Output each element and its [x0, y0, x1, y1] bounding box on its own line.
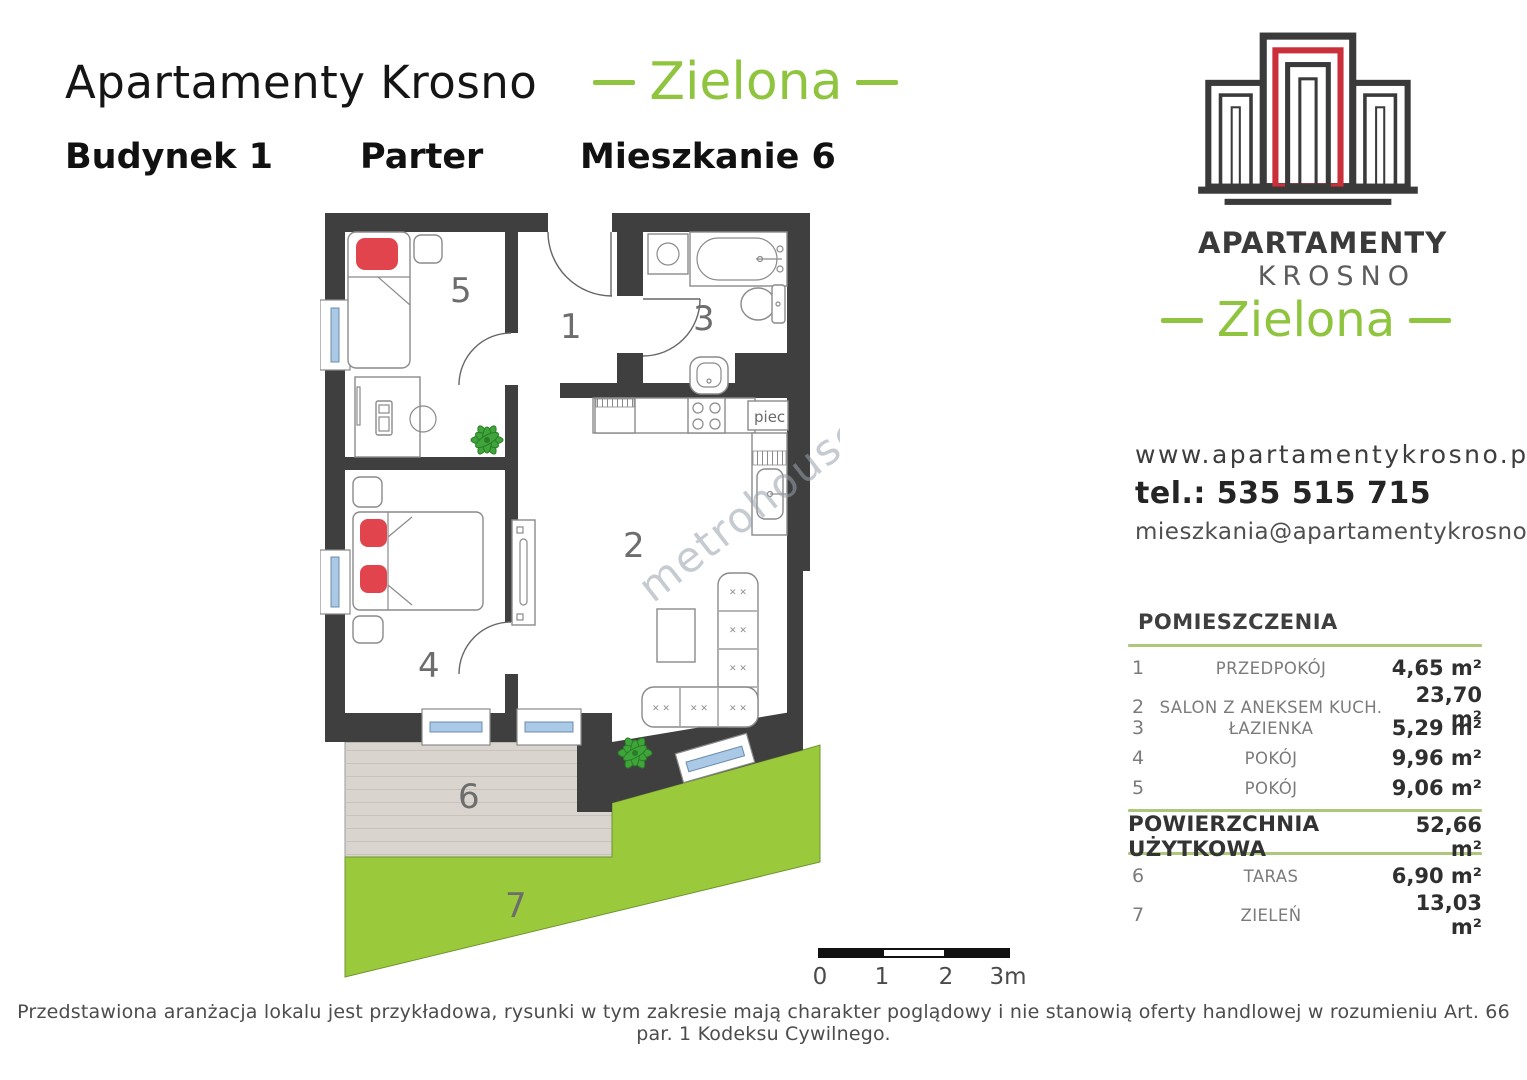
scale-bar: 0 1 2 3m — [818, 948, 1010, 990]
pillow — [360, 519, 387, 547]
room5-label: 5 — [450, 271, 472, 311]
room-area: 5,29 m² — [1386, 716, 1482, 740]
room-area: 6,90 m² — [1386, 864, 1482, 888]
page-title: Apartamenty Krosno — [65, 56, 537, 109]
website-link[interactable]: www.apartamentykrosno.pl — [1135, 440, 1527, 469]
room-area: 9,06 m² — [1386, 776, 1482, 800]
logo-project-name: Zielona — [1128, 292, 1484, 348]
floor-label: Parter — [360, 137, 580, 177]
legal-disclaimer: Przedstawiona aranżacja lokalu jest przy… — [0, 1001, 1527, 1045]
monitor — [376, 401, 392, 435]
room-area: 13,03 m² — [1386, 891, 1482, 939]
company-logo: APARTAMENTY KROSNO — [1198, 30, 1422, 292]
room-name: POKÓJ — [1156, 749, 1386, 768]
table-row: 3 ŁAZIENKA 5,29 m² — [1128, 713, 1482, 743]
salon-label: 2 — [623, 526, 645, 566]
room-area: 4,65 m² — [1386, 656, 1482, 680]
toilet — [741, 285, 785, 323]
unit-subtitle: Budynek 1 Parter Mieszkanie 6 — [65, 137, 865, 177]
svg-text:✕ ✕: ✕ ✕ — [729, 626, 747, 636]
logo-brand-line2: KROSNO — [1198, 261, 1422, 292]
header: Apartamenty Krosno Zielona — [65, 52, 898, 112]
terrace-area: 6 — [345, 742, 612, 857]
green-label: 7 — [505, 886, 527, 926]
project-name: Zielona — [649, 52, 842, 112]
room-number: 1 — [1128, 657, 1156, 679]
fridge — [595, 398, 635, 433]
logo-project-text: Zielona — [1217, 292, 1395, 348]
furnace-box: piec — [748, 401, 788, 430]
rooms-table-title: POMIESZCZENIA — [1128, 610, 1482, 634]
room-name: TARAS — [1156, 867, 1386, 886]
pillow — [356, 238, 398, 270]
window-salon-south — [517, 709, 581, 745]
total-area-row: POWIERZCHNIA UŻYTKOWA 52,66 m² — [1128, 812, 1482, 852]
dash-left-icon — [593, 80, 635, 85]
hall-label: 1 — [560, 307, 582, 347]
room4-label: 4 — [418, 646, 440, 686]
window-room4-south — [422, 709, 490, 745]
dash-left-icon — [1161, 318, 1203, 323]
window-room5 — [320, 300, 350, 370]
pillow — [360, 565, 387, 593]
nightstand — [414, 235, 442, 263]
scale-tick: 3m — [989, 964, 1026, 990]
washing-machine — [648, 234, 688, 274]
rooms-table: POMIESZCZENIA 1 PRZEDPOKÓJ 4,65 m² 2 SAL… — [1128, 610, 1482, 927]
furnace-label: piec — [754, 408, 785, 426]
room-name: ŁAZIENKA — [1156, 719, 1386, 738]
room-number: 3 — [1128, 717, 1156, 739]
nightstand — [353, 616, 383, 643]
nightstand — [353, 477, 382, 507]
scale-tick: 0 — [813, 964, 828, 990]
dash-right-icon — [856, 80, 898, 85]
total-area-value: 52,66 m² — [1386, 813, 1482, 861]
buildings-logo-icon — [1198, 30, 1422, 210]
svg-text:✕ ✕: ✕ ✕ — [729, 664, 747, 674]
table-row: 5 POKÓJ 9,06 m² — [1128, 773, 1482, 803]
email-address[interactable]: mieszkania@apartamentykrosno.pl — [1135, 519, 1527, 545]
project-name-header: Zielona — [593, 52, 898, 112]
room-number: 5 — [1128, 777, 1156, 799]
floorplan-sheet: Apartamenty Krosno Zielona Budynek 1 Par… — [0, 0, 1527, 1080]
room-name: POKÓJ — [1156, 779, 1386, 798]
terrace-label: 6 — [458, 777, 480, 817]
bathroom-label: 3 — [693, 299, 715, 339]
logo-brand-line1: APARTAMENTY — [1198, 226, 1422, 260]
room-name: SALON Z ANEKSEM KUCH. — [1156, 698, 1386, 717]
table-row: 7 ZIELEŃ 13,03 m² — [1128, 891, 1482, 921]
room-number: 7 — [1128, 904, 1156, 926]
svg-text:✕ ✕: ✕ ✕ — [690, 704, 708, 714]
bathroom-sink — [690, 357, 728, 394]
scale-bar-segments — [818, 948, 1010, 958]
contact-block: www.apartamentykrosno.pl tel.: 535 515 7… — [1135, 440, 1527, 545]
room-number: 2 — [1128, 696, 1156, 718]
room-name: ZIELEŃ — [1156, 906, 1386, 925]
coffee-table — [657, 609, 695, 662]
room-name: PRZEDPOKÓJ — [1156, 659, 1386, 678]
bathtub — [690, 232, 787, 286]
table-row: 1 PRZEDPOKÓJ 4,65 m² — [1128, 653, 1482, 683]
table-row: 2 SALON Z ANEKSEM KUCH. 23,70 m² — [1128, 683, 1482, 713]
unit-label: Mieszkanie 6 — [580, 137, 836, 177]
wardrobe — [512, 520, 535, 625]
room-area: 9,96 m² — [1386, 746, 1482, 770]
svg-text:✕ ✕: ✕ ✕ — [652, 704, 670, 714]
room-number: 6 — [1128, 865, 1156, 887]
scale-tick: 1 — [875, 964, 890, 990]
svg-text:✕ ✕: ✕ ✕ — [729, 588, 747, 598]
building-label: Budynek 1 — [65, 137, 360, 177]
dash-right-icon — [1409, 318, 1451, 323]
window-room4 — [320, 550, 350, 614]
phone-number[interactable]: tel.: 535 515 715 — [1135, 476, 1527, 511]
table-row: 6 TARAS 6,90 m² — [1128, 861, 1482, 891]
stove — [688, 398, 725, 433]
scale-tick: 2 — [939, 964, 954, 990]
svg-text:✕ ✕: ✕ ✕ — [729, 704, 747, 714]
room-number: 4 — [1128, 747, 1156, 769]
table-row: 4 POKÓJ 9,96 m² — [1128, 743, 1482, 773]
floor-plan-drawing: 6 7 — [320, 205, 840, 1020]
total-area-label: POWIERZCHNIA UŻYTKOWA — [1128, 812, 1386, 862]
